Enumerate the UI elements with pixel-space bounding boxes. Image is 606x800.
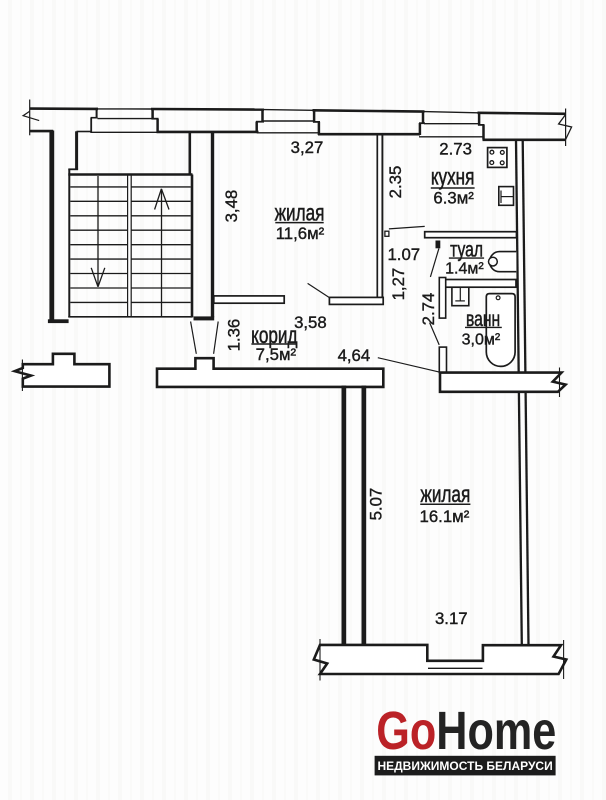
svg-text:1.36: 1.36 [224, 319, 243, 352]
svg-text:кухня: кухня [431, 165, 475, 190]
svg-text:1.07: 1.07 [387, 245, 420, 264]
svg-text:16.1м²: 16.1м² [420, 507, 470, 526]
svg-text:3,58: 3,58 [294, 313, 327, 332]
svg-text:GoHome: GoHome [376, 701, 556, 761]
svg-text:1.4м²: 1.4м² [445, 260, 484, 277]
svg-text:3.17: 3.17 [435, 609, 468, 628]
svg-text:3,27: 3,27 [291, 138, 324, 157]
svg-text:1,27: 1,27 [389, 268, 408, 301]
svg-text:7,5м²: 7,5м² [256, 345, 297, 364]
svg-text:3,0м²: 3,0м² [462, 332, 501, 349]
svg-text:6.3м²: 6.3м² [433, 188, 474, 207]
svg-text:3,48: 3,48 [222, 190, 241, 223]
svg-text:2.35: 2.35 [386, 166, 405, 199]
svg-text:НЕДВИЖИМОСТЬ БЕЛАРУСИ: НЕДВИЖИМОСТЬ БЕЛАРУСИ [377, 759, 552, 773]
svg-text:2.73: 2.73 [439, 139, 472, 158]
svg-text:4,64: 4,64 [338, 346, 371, 365]
svg-text:туал: туал [450, 237, 483, 261]
svg-text:11,6м²: 11,6м² [276, 224, 325, 243]
svg-text:2.74: 2.74 [419, 293, 438, 326]
svg-text:5.07: 5.07 [367, 488, 386, 521]
